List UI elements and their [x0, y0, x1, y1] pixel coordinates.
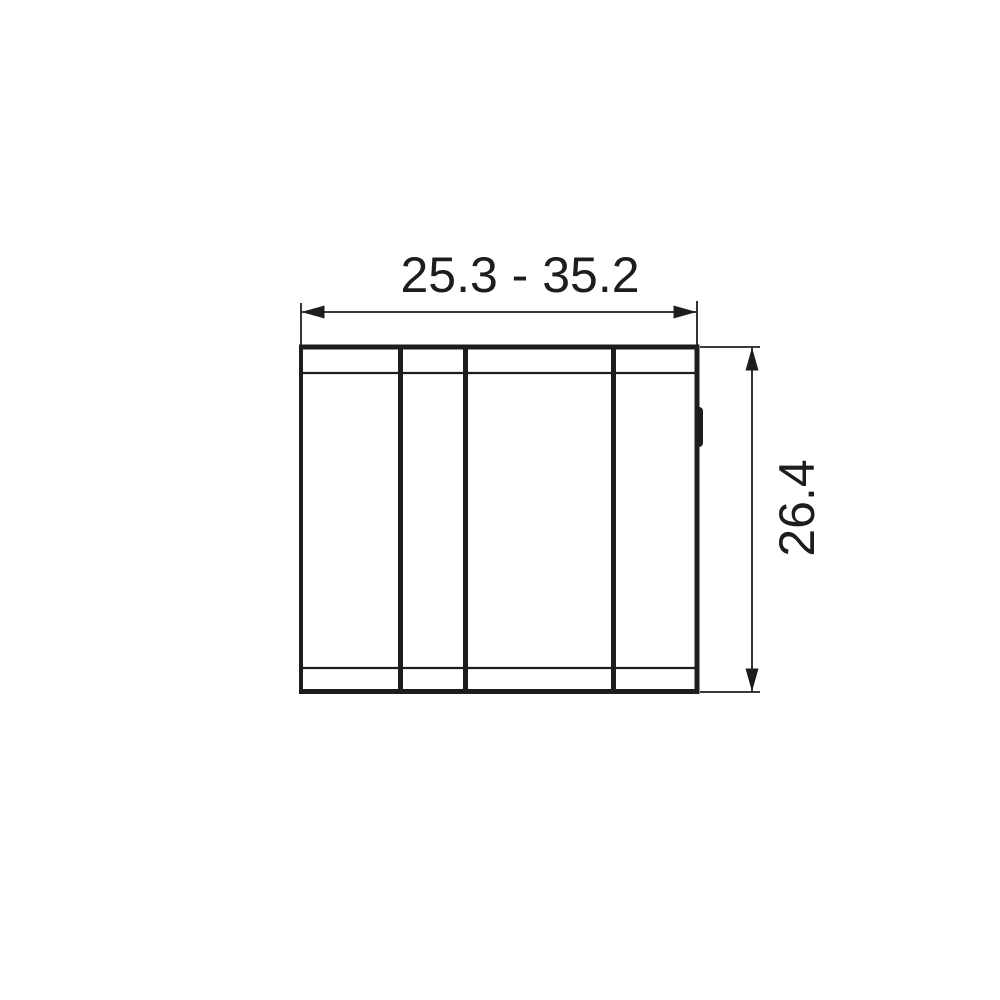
height-arrow-bottom-icon [746, 669, 759, 692]
height-dimension: 26.4 [700, 347, 825, 692]
width-arrow-left-icon [302, 306, 325, 319]
right-edge-latch-bump [695, 407, 704, 447]
technical-drawing-page: 25.3 - 35.2 26.4 [0, 0, 1000, 1000]
width-arrow-right-icon [674, 306, 697, 319]
height-arrow-top-icon [746, 348, 759, 371]
part-front-view [299, 345, 703, 695]
width-dimension-label: 25.3 - 35.2 [400, 247, 639, 303]
dimension-drawing: 25.3 - 35.2 26.4 [0, 0, 1000, 1000]
width-dimension: 25.3 - 35.2 [301, 247, 697, 345]
height-dimension-label: 26.4 [769, 459, 825, 556]
